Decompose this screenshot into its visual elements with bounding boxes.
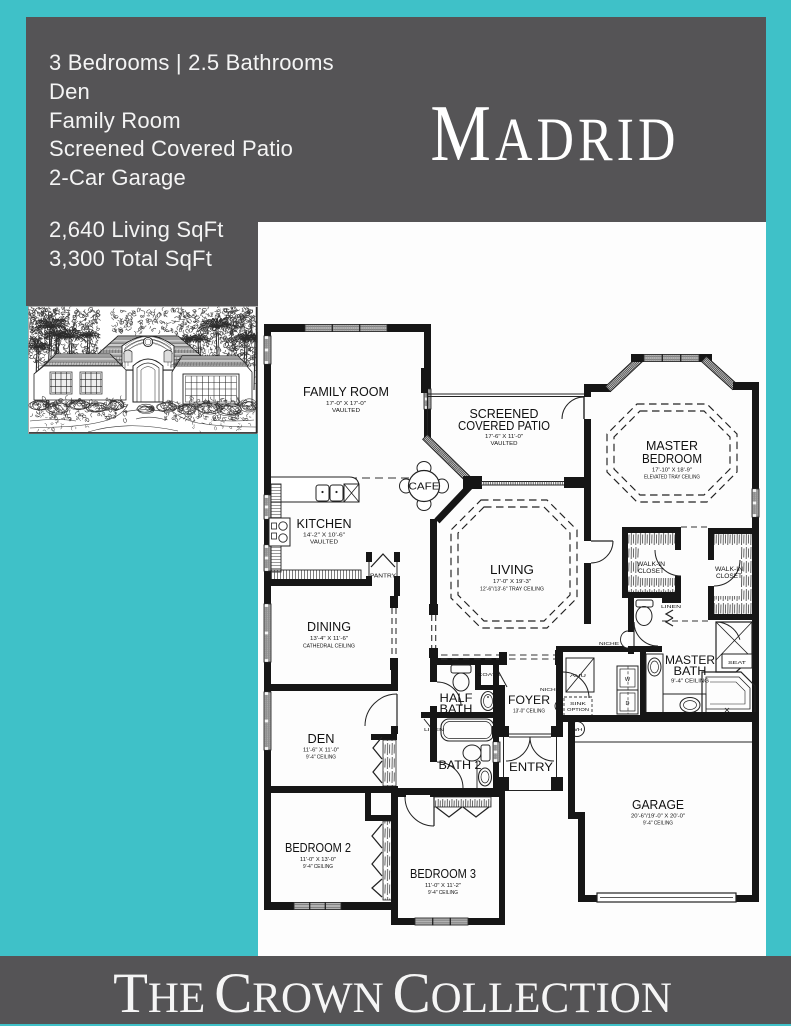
svg-text:VAULTED: VAULTED [491,441,518,447]
svg-text:11'-0" X 11'-2": 11'-0" X 11'-2" [425,883,461,889]
svg-text:CLOSET: CLOSET [716,574,742,580]
svg-text:LIVING: LIVING [490,562,534,577]
svg-text:SEAT: SEAT [728,660,746,666]
svg-text:9'-4" CEILING: 9'-4" CEILING [306,755,336,761]
svg-text:D: D [626,701,630,707]
svg-text:GARAGE: GARAGE [632,797,684,812]
svg-text:DEN: DEN [308,731,335,746]
svg-text:13'-4" X 11'-6": 13'-4" X 11'-6" [310,636,348,642]
svg-text:ELEVATED TRAY CEILING: ELEVATED TRAY CEILING [644,475,700,481]
svg-text:COVERED PATIO: COVERED PATIO [458,418,550,433]
svg-text:BEDROOM: BEDROOM [642,451,702,466]
svg-text:WALK-IN: WALK-IN [637,562,665,568]
svg-text:14'-2" X 10'-6": 14'-2" X 10'-6" [303,533,345,539]
svg-text:OPTION: OPTION [567,707,589,712]
svg-text:DINING: DINING [307,619,351,634]
svg-text:VAULTED: VAULTED [310,540,338,546]
svg-text:9'-4" CEILING: 9'-4" CEILING [428,890,458,896]
svg-text:13'-0" CEILING: 13'-0" CEILING [513,709,545,715]
svg-text:BATH: BATH [674,664,707,678]
svg-text:CLOSET: CLOSET [638,569,664,575]
svg-text:WALK-IN: WALK-IN [715,567,743,573]
svg-text:9'-4" CEILING: 9'-4" CEILING [303,864,333,870]
svg-text:CATHEDRAL CEILING: CATHEDRAL CEILING [303,644,355,650]
svg-text:NICHE: NICHE [599,641,619,646]
svg-text:BATH 2: BATH 2 [439,758,482,772]
svg-text:BEDROOM 3: BEDROOM 3 [410,866,476,881]
svg-text:LINEN: LINEN [661,604,681,609]
svg-text:PANTRY: PANTRY [370,574,397,580]
svg-text:12'-6"/13'-6" TRAY CEILING: 12'-6"/13'-6" TRAY CEILING [480,587,544,593]
svg-text:11'-6" X 11'-0": 11'-6" X 11'-0" [303,748,339,754]
svg-text:VAULTED: VAULTED [332,408,360,414]
svg-text:FOYER: FOYER [508,693,550,707]
svg-text:17'-0" X 17'-0": 17'-0" X 17'-0" [326,401,366,407]
svg-text:17'-10" X 18'-9": 17'-10" X 18'-9" [652,468,692,474]
svg-text:11'-0" X 13'-0": 11'-0" X 13'-0" [300,857,336,863]
svg-text:BEDROOM 2: BEDROOM 2 [285,840,351,855]
svg-text:20'-6"/19'-0" X 20'-0": 20'-6"/19'-0" X 20'-0" [631,814,685,820]
svg-text:CAFE: CAFE [409,482,440,493]
svg-text:9'-4" CEILING: 9'-4" CEILING [643,821,673,827]
svg-text:SINK: SINK [570,701,586,706]
svg-text:17'-6" X 11'-0": 17'-6" X 11'-0" [485,434,523,440]
svg-text:ENTRY: ENTRY [509,760,553,774]
svg-text:17'-0" X 19'-3": 17'-0" X 19'-3" [493,579,531,585]
svg-text:FAMILY ROOM: FAMILY ROOM [303,384,389,399]
svg-text:KITCHEN: KITCHEN [297,516,352,531]
svg-text:BATH: BATH [440,702,473,716]
svg-text:9'-4" CEILING: 9'-4" CEILING [671,679,709,685]
